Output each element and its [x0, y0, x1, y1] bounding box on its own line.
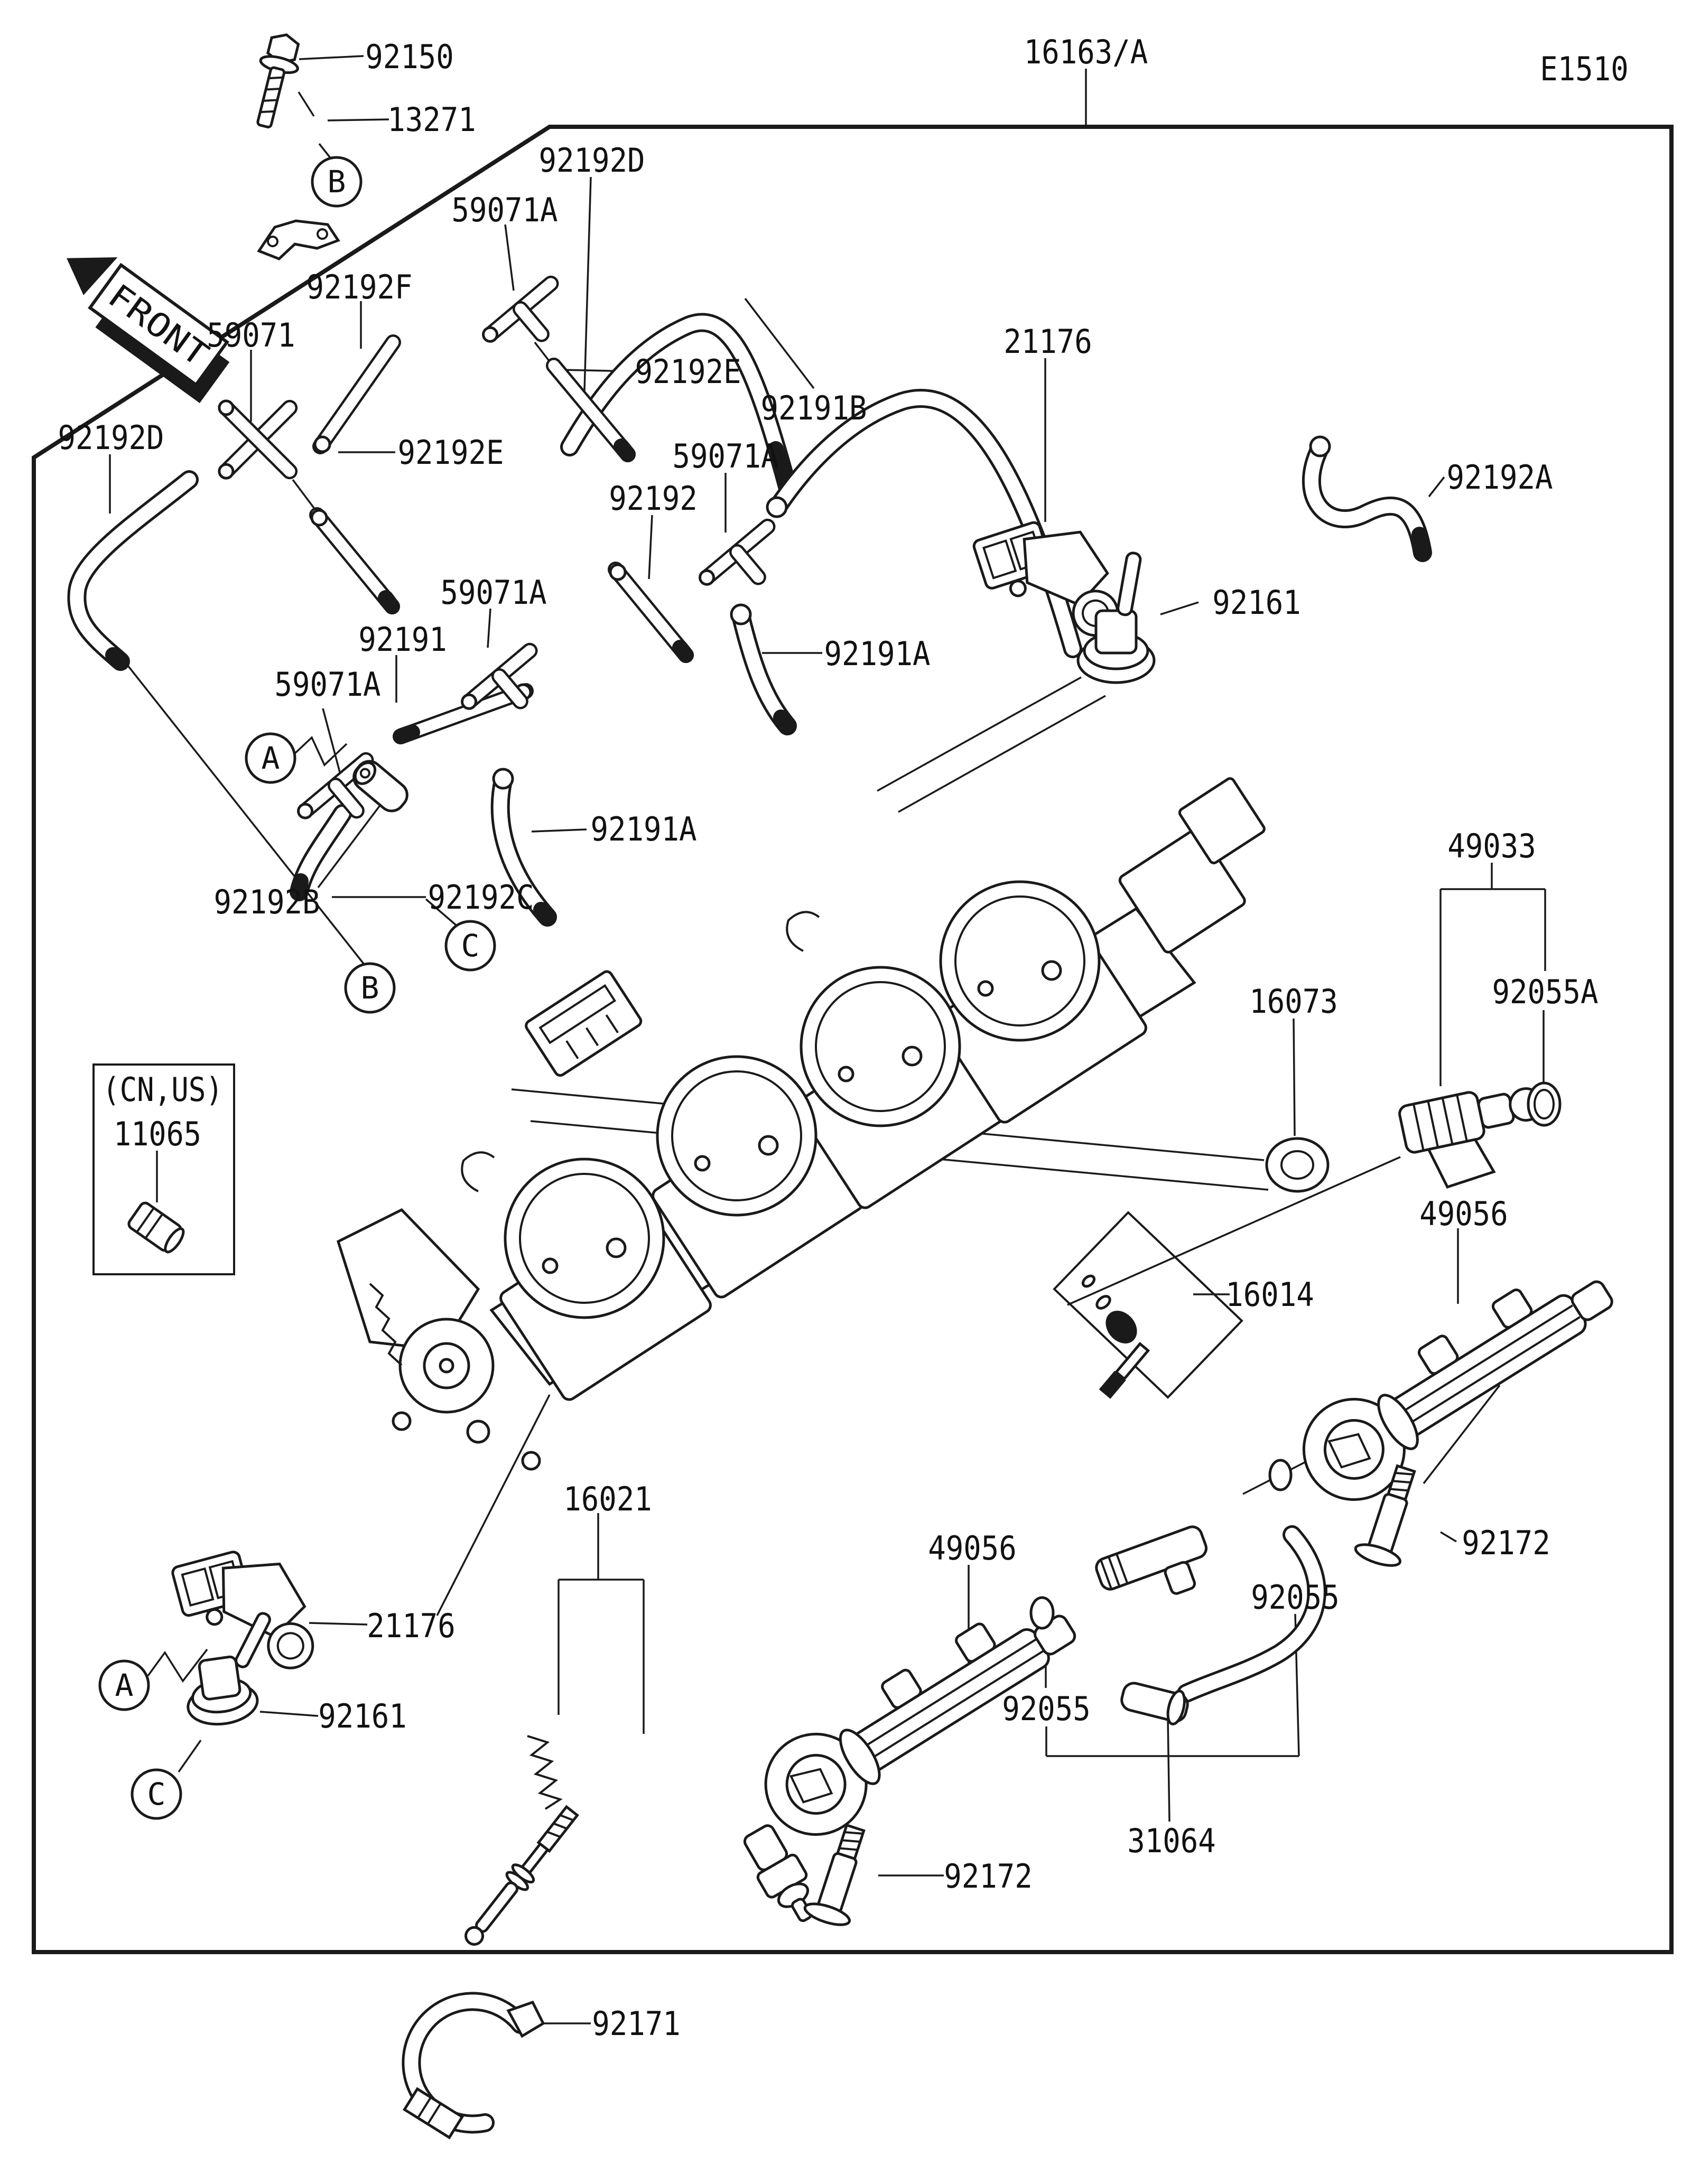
part-label-92150: 92150: [365, 38, 454, 76]
part-label-21176: 21176: [1004, 322, 1092, 361]
grommet-16073: [1267, 1138, 1328, 1191]
parts-diagram-page: FRONT: [0, 0, 1691, 2184]
bracket-clamp: [259, 221, 338, 259]
part-label-13271: 13271: [387, 100, 476, 139]
stop-screw-assembly: [459, 1736, 582, 1950]
part-label-31064: 31064: [1127, 1822, 1216, 1860]
region-note-part: 11065: [114, 1115, 201, 1153]
svg-text:A: A: [262, 740, 280, 776]
part-label-49056: 49056: [928, 1529, 1017, 1567]
svg-text:B: B: [361, 970, 379, 1006]
part-label-92161: 92161: [318, 1697, 407, 1735]
part-label-92192a: 92192A: [1447, 458, 1553, 497]
part-label-92192e: 92192E: [635, 352, 741, 391]
part-label-92055: 92055: [1251, 1578, 1340, 1617]
part-label-e1510: E1510: [1540, 50, 1629, 88]
part-label-16021: 16021: [563, 1480, 652, 1518]
part-label-92191a: 92191A: [591, 810, 697, 848]
ref-badge-b: B: [312, 157, 361, 206]
pipe-end-31064: [1119, 1678, 1191, 1726]
part-label-49033: 49033: [1447, 827, 1536, 865]
svg-text:B: B: [328, 164, 346, 200]
fuel-rail-right: [1285, 1249, 1633, 1518]
ref-badge-c: C: [132, 1770, 181, 1818]
svg-text:C: C: [461, 928, 480, 964]
iap-sensor-bottom: [171, 1537, 319, 1692]
ref-badge-c: C: [446, 921, 495, 970]
vacuum-hoses: [77, 322, 1423, 1693]
o-ring-92055-left: [1031, 1598, 1053, 1628]
part-label-49056: 49056: [1419, 1194, 1508, 1233]
part-label-92192d: 92192D: [58, 418, 164, 457]
fuel-tee: [1094, 1524, 1218, 1617]
ref-badge-a: A: [246, 734, 295, 782]
svg-text:C: C: [147, 1776, 166, 1812]
part-label-92191a: 92191A: [824, 634, 931, 673]
part-label-92192b: 92192B: [214, 883, 320, 921]
part-label-59071a: 59071A: [673, 437, 779, 475]
part-label-16073: 16073: [1249, 982, 1338, 1021]
part-label-92192c: 92192C: [428, 878, 534, 917]
ref-badge-a: A: [100, 1661, 148, 1710]
rail-screw-bottom: [803, 1821, 877, 1929]
part-label-92191: 92191: [358, 620, 447, 659]
hose-clamp: [404, 2001, 543, 2138]
part-label-16014: 16014: [1225, 1275, 1314, 1314]
svg-text:A: A: [115, 1667, 134, 1703]
part-label-92191b: 92191B: [761, 389, 867, 427]
part-label-59071a: 59071A: [275, 665, 381, 704]
throttle-bores: [498, 882, 1148, 1403]
region-note-region: (CN,US): [103, 1070, 223, 1109]
part-label-92172: 92172: [1462, 1524, 1550, 1562]
part-label-59071: 59071: [207, 316, 295, 354]
tps-connector: [524, 969, 643, 1077]
part-label-92192e: 92192E: [398, 433, 504, 472]
part-label-92055a: 92055A: [1492, 973, 1599, 1011]
region-note-box: (CN,US) 11065: [94, 1065, 234, 1274]
part-label-92055: 92055: [1002, 1690, 1091, 1728]
part-label-16163-a: 16163/A: [1024, 33, 1148, 71]
o-ring-92055-right: [1270, 1460, 1291, 1490]
part-label-92171: 92171: [592, 2004, 681, 2043]
part-label-59071a: 59071A: [452, 191, 558, 229]
hose-open-end: [767, 498, 786, 517]
part-label-21176: 21176: [367, 1607, 456, 1645]
ref-badge-b: B: [346, 964, 394, 1012]
flange-bolt: [245, 30, 305, 130]
part-label-59071a: 59071A: [441, 573, 547, 612]
exploded-parts-diagram: FRONT: [0, 0, 1691, 2184]
part-label-92192f: 92192F: [306, 268, 413, 306]
region-note-cap: [127, 1201, 187, 1255]
part-label-92192d: 92192D: [539, 141, 645, 180]
part-label-92172: 92172: [944, 1857, 1033, 1896]
part-label-92161: 92161: [1212, 583, 1301, 622]
part-label-92192: 92192: [609, 479, 698, 518]
